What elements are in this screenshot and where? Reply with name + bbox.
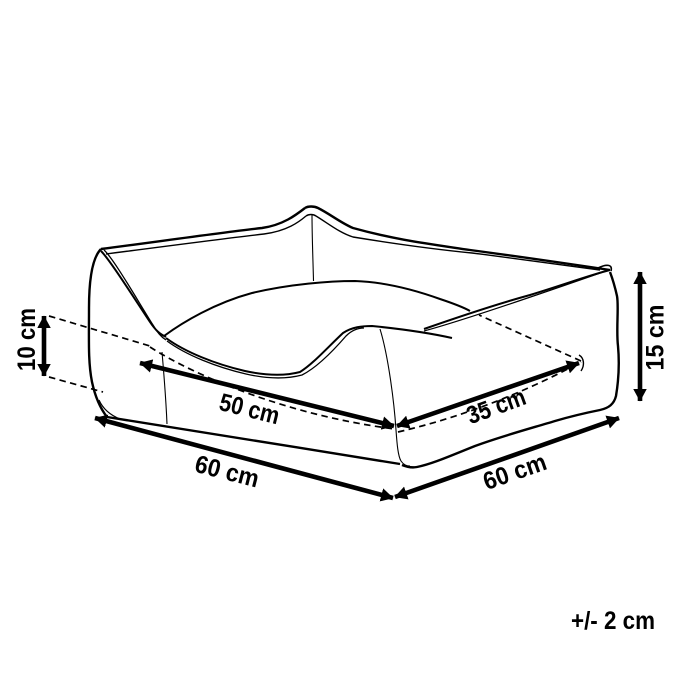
svg-text:10 cm: 10 cm xyxy=(13,308,41,371)
svg-text:+/- 2 cm: +/- 2 cm xyxy=(571,607,655,635)
svg-text:60 cm: 60 cm xyxy=(192,450,262,493)
svg-text:15 cm: 15 cm xyxy=(642,305,670,371)
